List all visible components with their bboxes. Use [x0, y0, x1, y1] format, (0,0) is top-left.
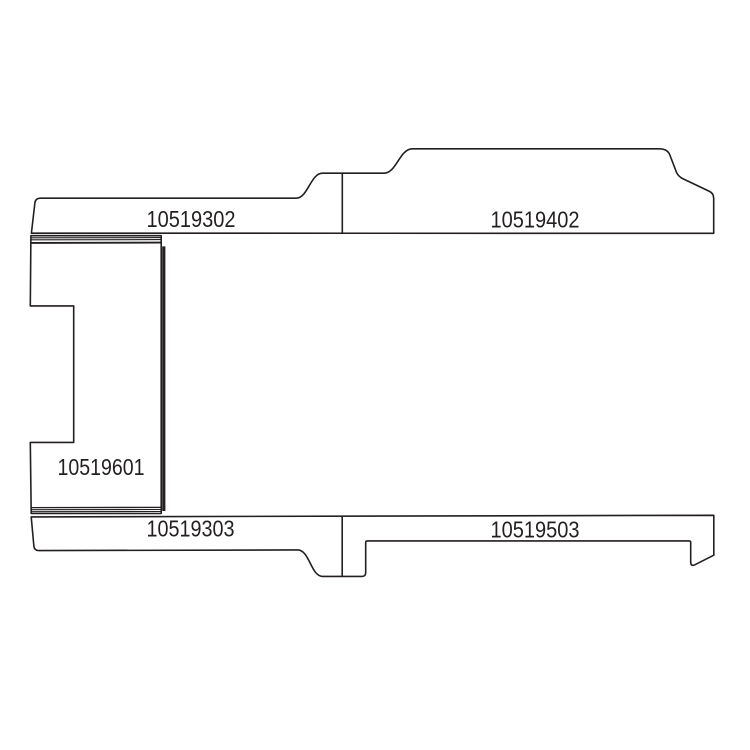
- svg-text:10519503: 10519503: [491, 517, 580, 543]
- svg-text:10519601: 10519601: [58, 454, 145, 480]
- svg-text:10519302: 10519302: [147, 206, 236, 232]
- svg-text:10519303: 10519303: [147, 516, 235, 542]
- svg-text:10519402: 10519402: [491, 207, 580, 233]
